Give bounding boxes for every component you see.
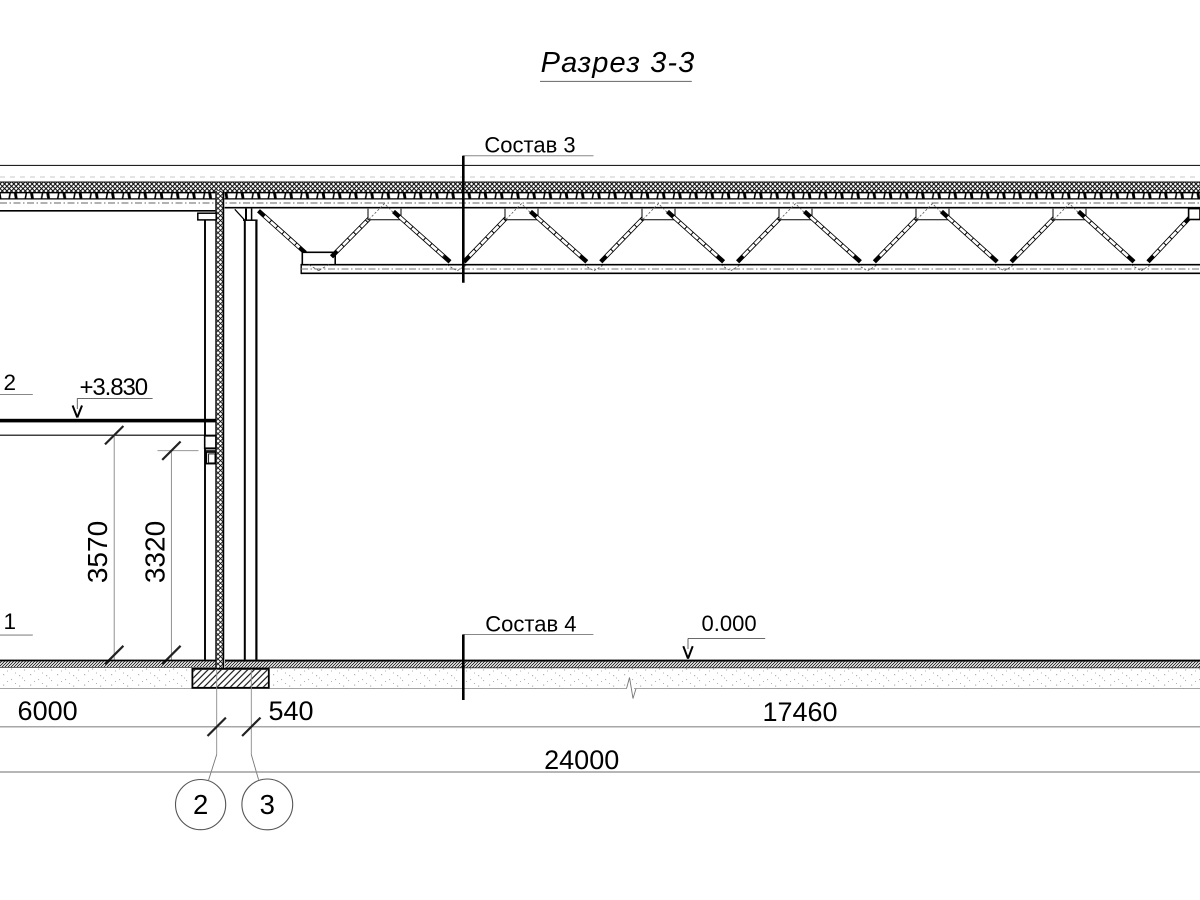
- svg-text:3570: 3570: [82, 521, 113, 583]
- svg-text:2: 2: [193, 789, 208, 820]
- svg-text:2: 2: [4, 370, 17, 395]
- svg-text:Состав 3: Состав 3: [484, 132, 575, 157]
- svg-text:17460: 17460: [762, 697, 837, 727]
- svg-text:Разрез 3-3: Разрез 3-3: [541, 47, 696, 79]
- svg-text:24000: 24000: [544, 745, 619, 775]
- svg-text:3320: 3320: [139, 521, 170, 583]
- svg-text:1: 1: [4, 609, 17, 634]
- svg-text:6000: 6000: [18, 696, 78, 726]
- svg-text:0.000: 0.000: [702, 611, 757, 636]
- svg-text:Состав 4: Состав 4: [485, 611, 576, 636]
- svg-text:3: 3: [260, 789, 275, 820]
- svg-text:540: 540: [268, 696, 313, 726]
- svg-text:+3.830: +3.830: [80, 374, 148, 401]
